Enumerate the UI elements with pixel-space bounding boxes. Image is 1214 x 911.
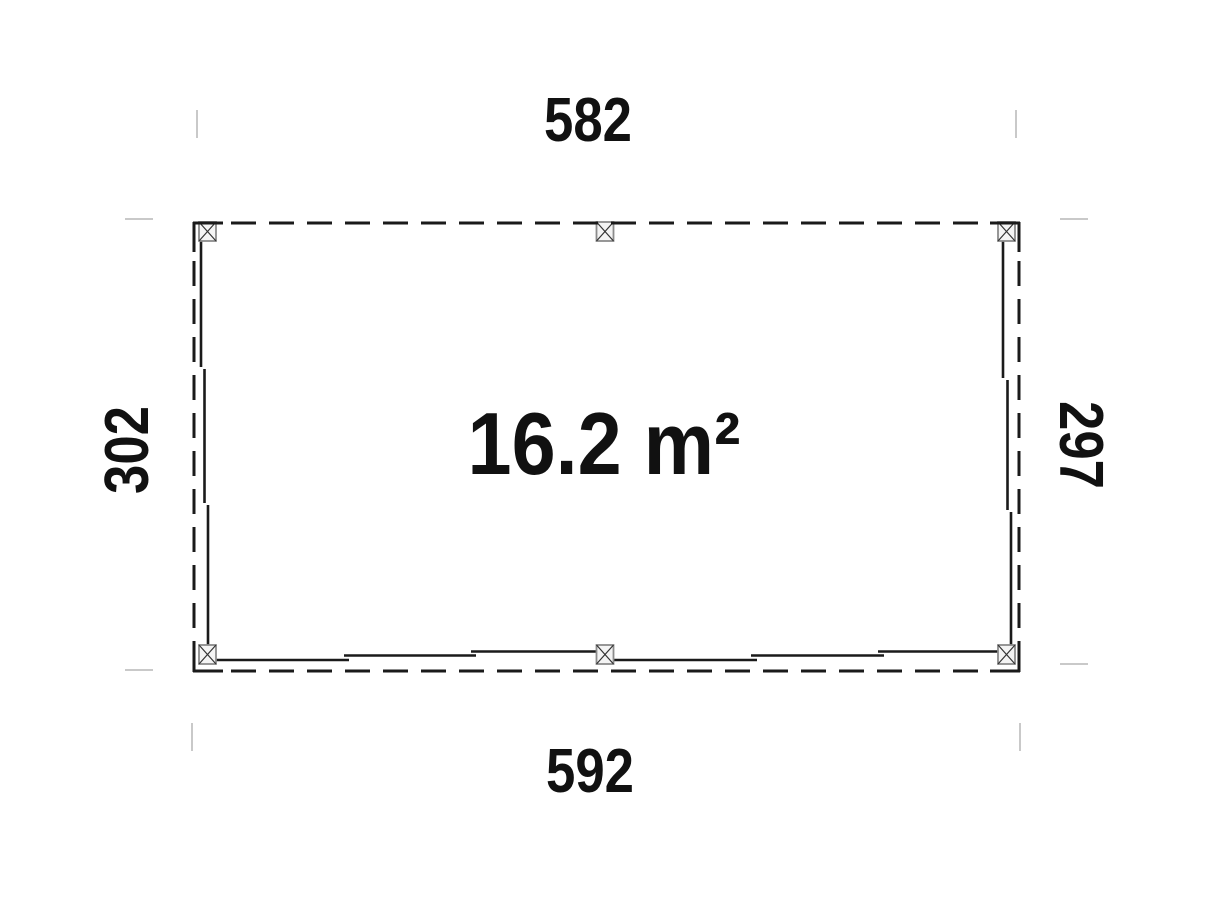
dimension-label-top: 582: [544, 90, 632, 152]
post-bottom-right: [998, 645, 1015, 664]
dimension-label-right: 297: [1049, 401, 1111, 489]
post-top-right: [998, 222, 1015, 241]
dimension-label-left: 302: [97, 406, 159, 494]
post-bottom-middle: [597, 645, 614, 664]
post-top-middle: [597, 222, 614, 241]
area-label: 16.2 m²: [468, 400, 741, 488]
post-bottom-left: [199, 645, 216, 664]
dimension-label-bottom: 592: [546, 741, 634, 803]
floor-plan-canvas: 582 592 302 297 16.2 m²: [0, 0, 1214, 911]
post-top-left: [199, 222, 216, 241]
